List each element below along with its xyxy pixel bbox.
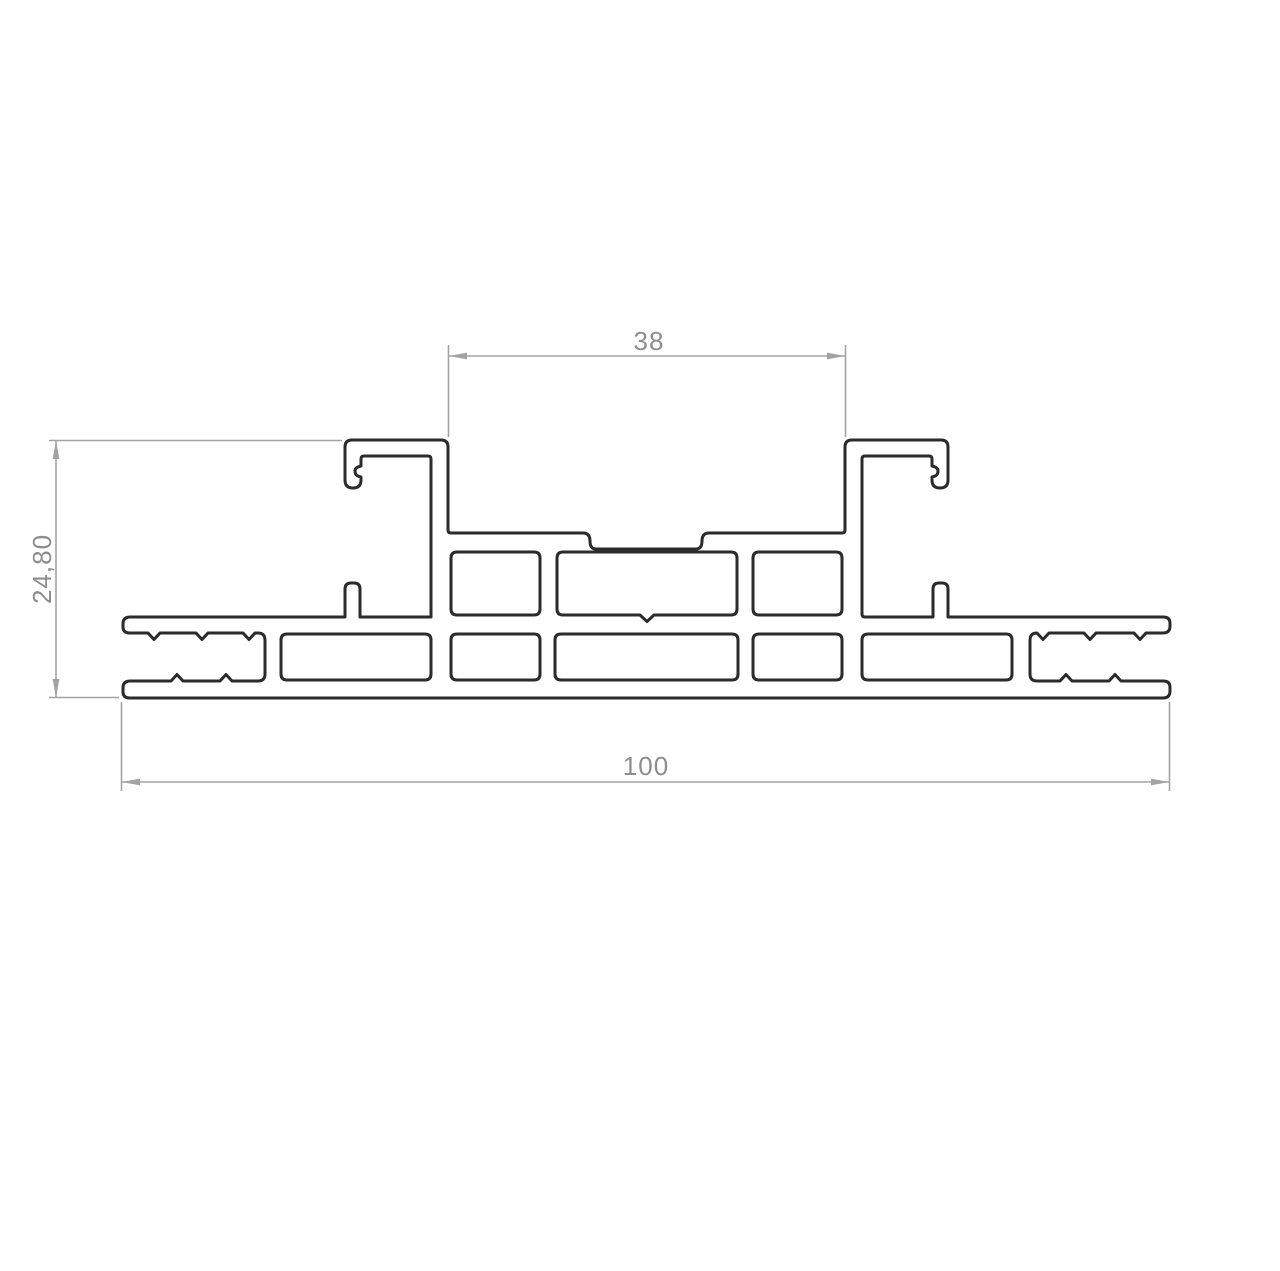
drawing-sheet: 38 24,80 100 [0,0,1280,1271]
dimension-lines [49,345,1170,791]
dim2480-arrow-top [53,441,60,460]
cavity-lower-5 [862,634,1012,680]
dim2480-arrow-bottom [53,679,60,698]
dimension-arrowheads [53,353,1170,786]
dim38-arrow-right [827,353,846,360]
cavity-lower-3 [555,634,738,680]
cavity-lower-4 [753,634,842,680]
dim-label-top-gap: 38 [634,326,665,356]
dim38-arrow-left [449,353,468,360]
cavity-upper-right [753,552,842,615]
profile-cross-section-drawing: 38 24,80 100 [0,0,1280,1271]
dim100-arrow-right [1151,779,1170,786]
dim100-arrow-left [122,779,141,786]
cavity-upper-center [557,552,737,622]
profile-geometry [123,440,1170,698]
cavity-lower-2 [451,634,540,680]
cavity-lower-1 [281,634,431,680]
cavity-upper-left [451,552,540,615]
dim-label-overall-width: 100 [623,751,669,781]
dim-label-height: 24,80 [27,534,57,604]
